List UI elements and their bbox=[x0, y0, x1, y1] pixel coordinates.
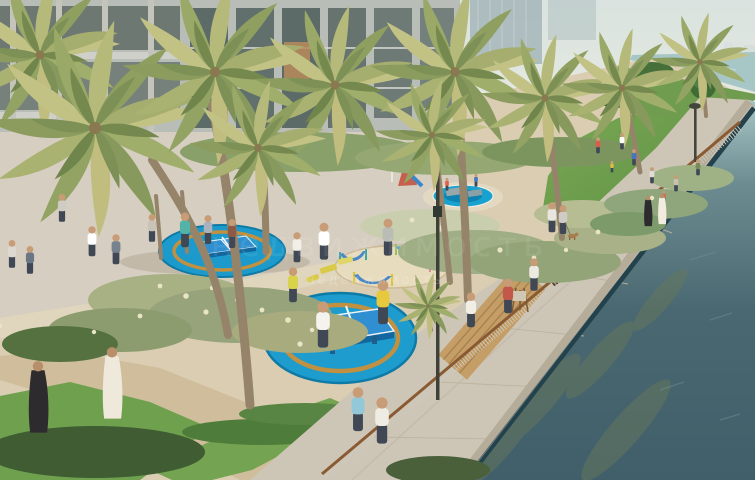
person-figure bbox=[26, 246, 34, 274]
table-tennis-player bbox=[180, 213, 190, 248]
child-at-pool bbox=[445, 178, 449, 191]
person-figure bbox=[112, 234, 121, 264]
waterfront-park-rendering: недвижимость недвижимость bbox=[0, 0, 755, 480]
child-on-lawn bbox=[610, 161, 613, 173]
person-figure bbox=[88, 226, 97, 256]
person-on-lawn bbox=[620, 133, 625, 149]
person-figure bbox=[466, 293, 476, 328]
person-on-lawn bbox=[632, 149, 637, 165]
person-on-lawn bbox=[596, 137, 601, 153]
watermark-text-large: недвижимость bbox=[211, 225, 550, 265]
person-figure bbox=[288, 268, 298, 303]
person-figure bbox=[148, 214, 156, 242]
park-render-image: недвижимость недвижимость bbox=[0, 0, 755, 480]
person-figure bbox=[8, 240, 16, 268]
tower-right bbox=[548, 0, 596, 40]
pole-sign bbox=[433, 206, 442, 217]
child-at-pool bbox=[474, 174, 478, 187]
person-figure bbox=[352, 387, 365, 431]
watermark-text-small: недвижимость bbox=[306, 273, 444, 288]
person-on-lawn bbox=[696, 159, 701, 175]
table-tennis-player bbox=[316, 301, 330, 347]
person-figure bbox=[58, 194, 66, 222]
person-figure bbox=[375, 397, 389, 443]
person-on-lawn bbox=[650, 167, 655, 183]
person-on-lawn bbox=[674, 175, 679, 191]
